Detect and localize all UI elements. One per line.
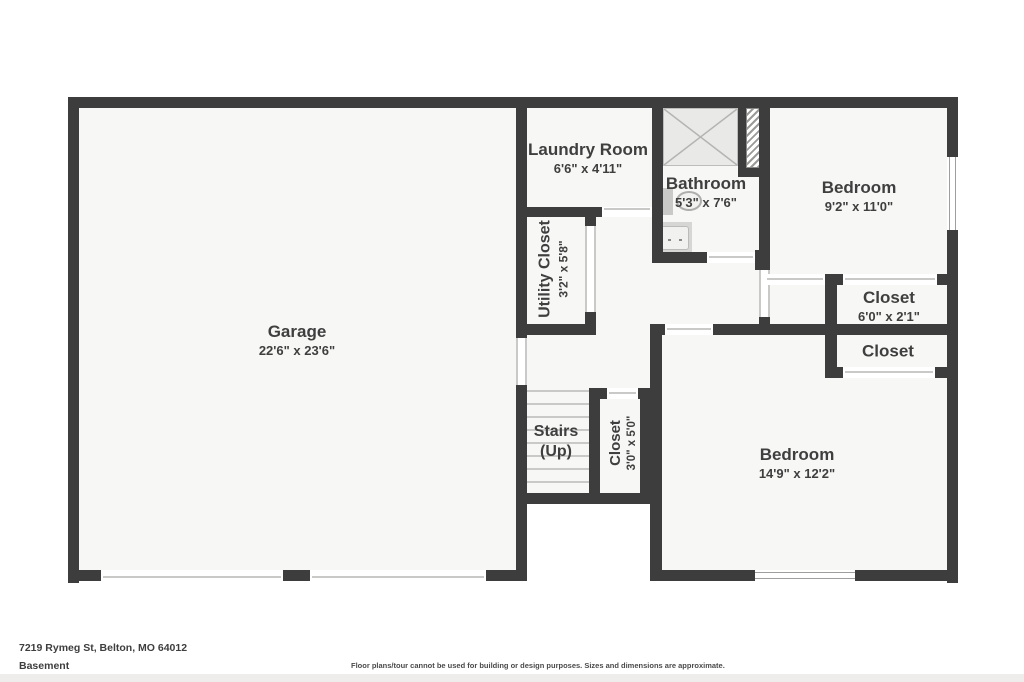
- wall-bathroom-corner: [755, 250, 770, 270]
- closet2-door: [843, 367, 935, 378]
- closet1-label: Closet 6'0" x 2'1": [858, 287, 920, 325]
- floor-plan-canvas: Garage 22'6" x 23'6" Laundry Room 6'6" x…: [0, 0, 1024, 682]
- closet3-label: Closet 3'0" x 5'0": [606, 416, 640, 471]
- room-dims: 14'9" x 12'2": [759, 465, 835, 482]
- wall-outer-left: [68, 97, 79, 583]
- room-dims: 6'6" x 4'11": [528, 160, 648, 177]
- room-dims: 5'3" x 7'6": [666, 194, 746, 211]
- laundry-door: [602, 207, 652, 217]
- room-name: Closet: [862, 341, 914, 362]
- bedroom1-window: [947, 157, 958, 230]
- utility-closet-label: Utility Closet 3'2" x 5'8": [535, 220, 572, 318]
- room-name: Bathroom: [666, 173, 746, 194]
- stairs-direction: (Up): [534, 442, 578, 462]
- garage-label: Garage 22'6" x 23'6": [259, 321, 335, 359]
- wall-stairs-closet: [589, 388, 600, 504]
- closet1-door: [843, 274, 937, 285]
- wall-bedroom2-left: [650, 324, 662, 581]
- room-name: Bedroom: [759, 444, 835, 465]
- sink-basin: [661, 226, 689, 250]
- bedroom2-window: [755, 570, 855, 581]
- bathroom-label: Bathroom 5'3" x 7'6": [666, 173, 746, 211]
- bedroom1-label: Bedroom 9'2" x 11'0": [822, 177, 897, 215]
- utility-closet-door: [585, 226, 596, 312]
- void-area: [527, 504, 650, 583]
- wall-closet2-bottom-left: [825, 367, 843, 378]
- disclaimer-text: Floor plans/tour cannot be used for buil…: [351, 661, 725, 670]
- wall-closet2-bottom-right: [935, 367, 947, 378]
- wall-stairs-bottom: [516, 493, 652, 504]
- wall-bedroom1-bottom-right: [937, 274, 947, 285]
- bathroom-door: [707, 252, 755, 263]
- shower-fixture: [663, 108, 738, 166]
- room-name: Garage: [259, 321, 335, 342]
- room-dims: 3'0" x 5'0": [625, 416, 640, 471]
- room-name: Closet: [606, 416, 625, 471]
- room-name: Closet: [858, 287, 920, 308]
- floor-fill: [79, 108, 947, 570]
- floor-label: Basement: [19, 660, 69, 672]
- bedroom2-label: Bedroom 14'9" x 12'2": [759, 444, 835, 482]
- room-dims: 9'2" x 11'0": [822, 198, 897, 215]
- closet2-label: Closet: [862, 341, 914, 362]
- room-dims: 3'2" x 5'8": [556, 220, 572, 318]
- bedroom1-door: [765, 274, 825, 285]
- sink-vanity: [658, 222, 692, 254]
- wall-closet3-top-left: [589, 388, 607, 399]
- garage-door-opening: [310, 570, 486, 581]
- wall-bathroom-right: [759, 108, 770, 250]
- room-name: Utility Closet: [535, 220, 556, 318]
- room-dims: 22'6" x 23'6": [259, 342, 335, 359]
- footer-bar: [0, 674, 1024, 682]
- wall-shower-divider: [738, 108, 746, 177]
- laundry-label: Laundry Room 6'6" x 4'11": [528, 139, 648, 177]
- room-name: Laundry Room: [528, 139, 648, 160]
- garage-entry-door: [516, 338, 527, 385]
- room-name: Bedroom: [822, 177, 897, 198]
- bedroom2-door: [665, 324, 713, 335]
- wall-bathroom-bottom: [652, 252, 707, 263]
- wall-utility-right-top: [585, 207, 596, 226]
- address-text: 7219 Rymeg St, Belton, MO 64012: [19, 642, 187, 654]
- wall-bathroom-left: [652, 108, 663, 263]
- wall-outer-top: [68, 97, 958, 108]
- wall-utility-bottom: [516, 324, 596, 335]
- closet3-door: [607, 388, 638, 399]
- room-dims: 6'0" x 2'1": [858, 308, 920, 325]
- room-name: Stairs: [534, 422, 578, 442]
- stairs-label: Stairs (Up): [534, 422, 578, 462]
- garage-door-opening: [101, 570, 283, 581]
